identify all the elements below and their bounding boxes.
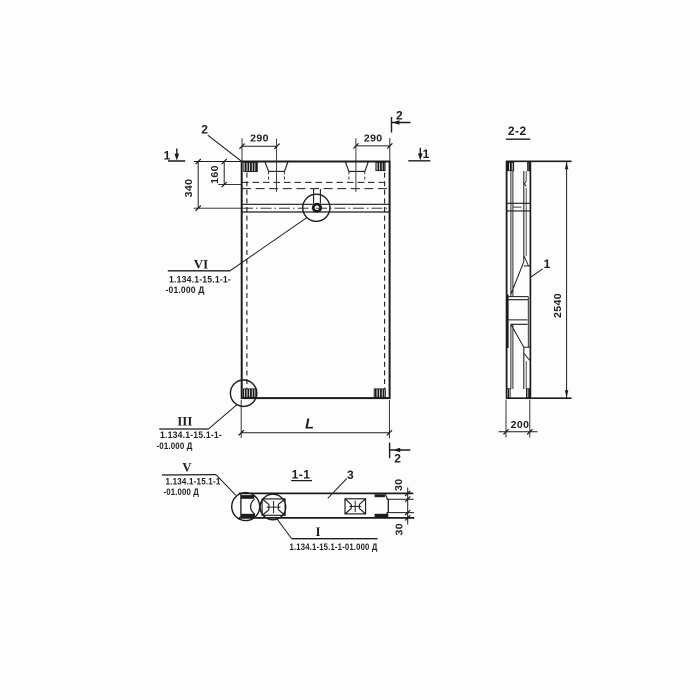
- svg-text:1.134.1-15.1-1-01.000 Д: 1.134.1-15.1-1-01.000 Д: [290, 542, 378, 552]
- svg-text:1-1: 1-1: [292, 468, 311, 482]
- svg-text:-01.000 Д: -01.000 Д: [157, 441, 193, 451]
- svg-text:160: 160: [209, 165, 221, 184]
- svg-text:1.134.1-15.1-1: 1.134.1-15.1-1: [166, 477, 221, 487]
- svg-text:V: V: [182, 460, 192, 475]
- svg-text:L: L: [305, 417, 314, 433]
- svg-text:30: 30: [393, 479, 405, 491]
- svg-text:III: III: [177, 414, 192, 429]
- svg-text:1: 1: [544, 257, 551, 271]
- svg-text:1.134.1-15.1-1-: 1.134.1-15.1-1-: [160, 430, 222, 440]
- svg-text:30: 30: [393, 523, 405, 535]
- svg-text:340: 340: [183, 179, 195, 198]
- svg-text:VI: VI: [194, 257, 208, 272]
- svg-text:2: 2: [394, 452, 401, 466]
- svg-text:I: I: [315, 524, 320, 539]
- svg-text:2540: 2540: [552, 293, 564, 318]
- svg-text:-01.000 Д: -01.000 Д: [166, 285, 205, 295]
- svg-text:1: 1: [164, 149, 171, 163]
- svg-text:290: 290: [250, 133, 269, 145]
- svg-text:2: 2: [396, 109, 403, 123]
- svg-text:200: 200: [511, 419, 530, 431]
- svg-text:1.134.1-15.1-1-: 1.134.1-15.1-1-: [169, 275, 231, 285]
- svg-text:3: 3: [347, 468, 354, 482]
- svg-text:-01.000 Д: -01.000 Д: [164, 487, 200, 497]
- svg-text:1: 1: [423, 147, 430, 161]
- svg-text:2-2: 2-2: [508, 124, 527, 138]
- svg-text:2: 2: [201, 123, 208, 137]
- svg-text:290: 290: [364, 132, 383, 144]
